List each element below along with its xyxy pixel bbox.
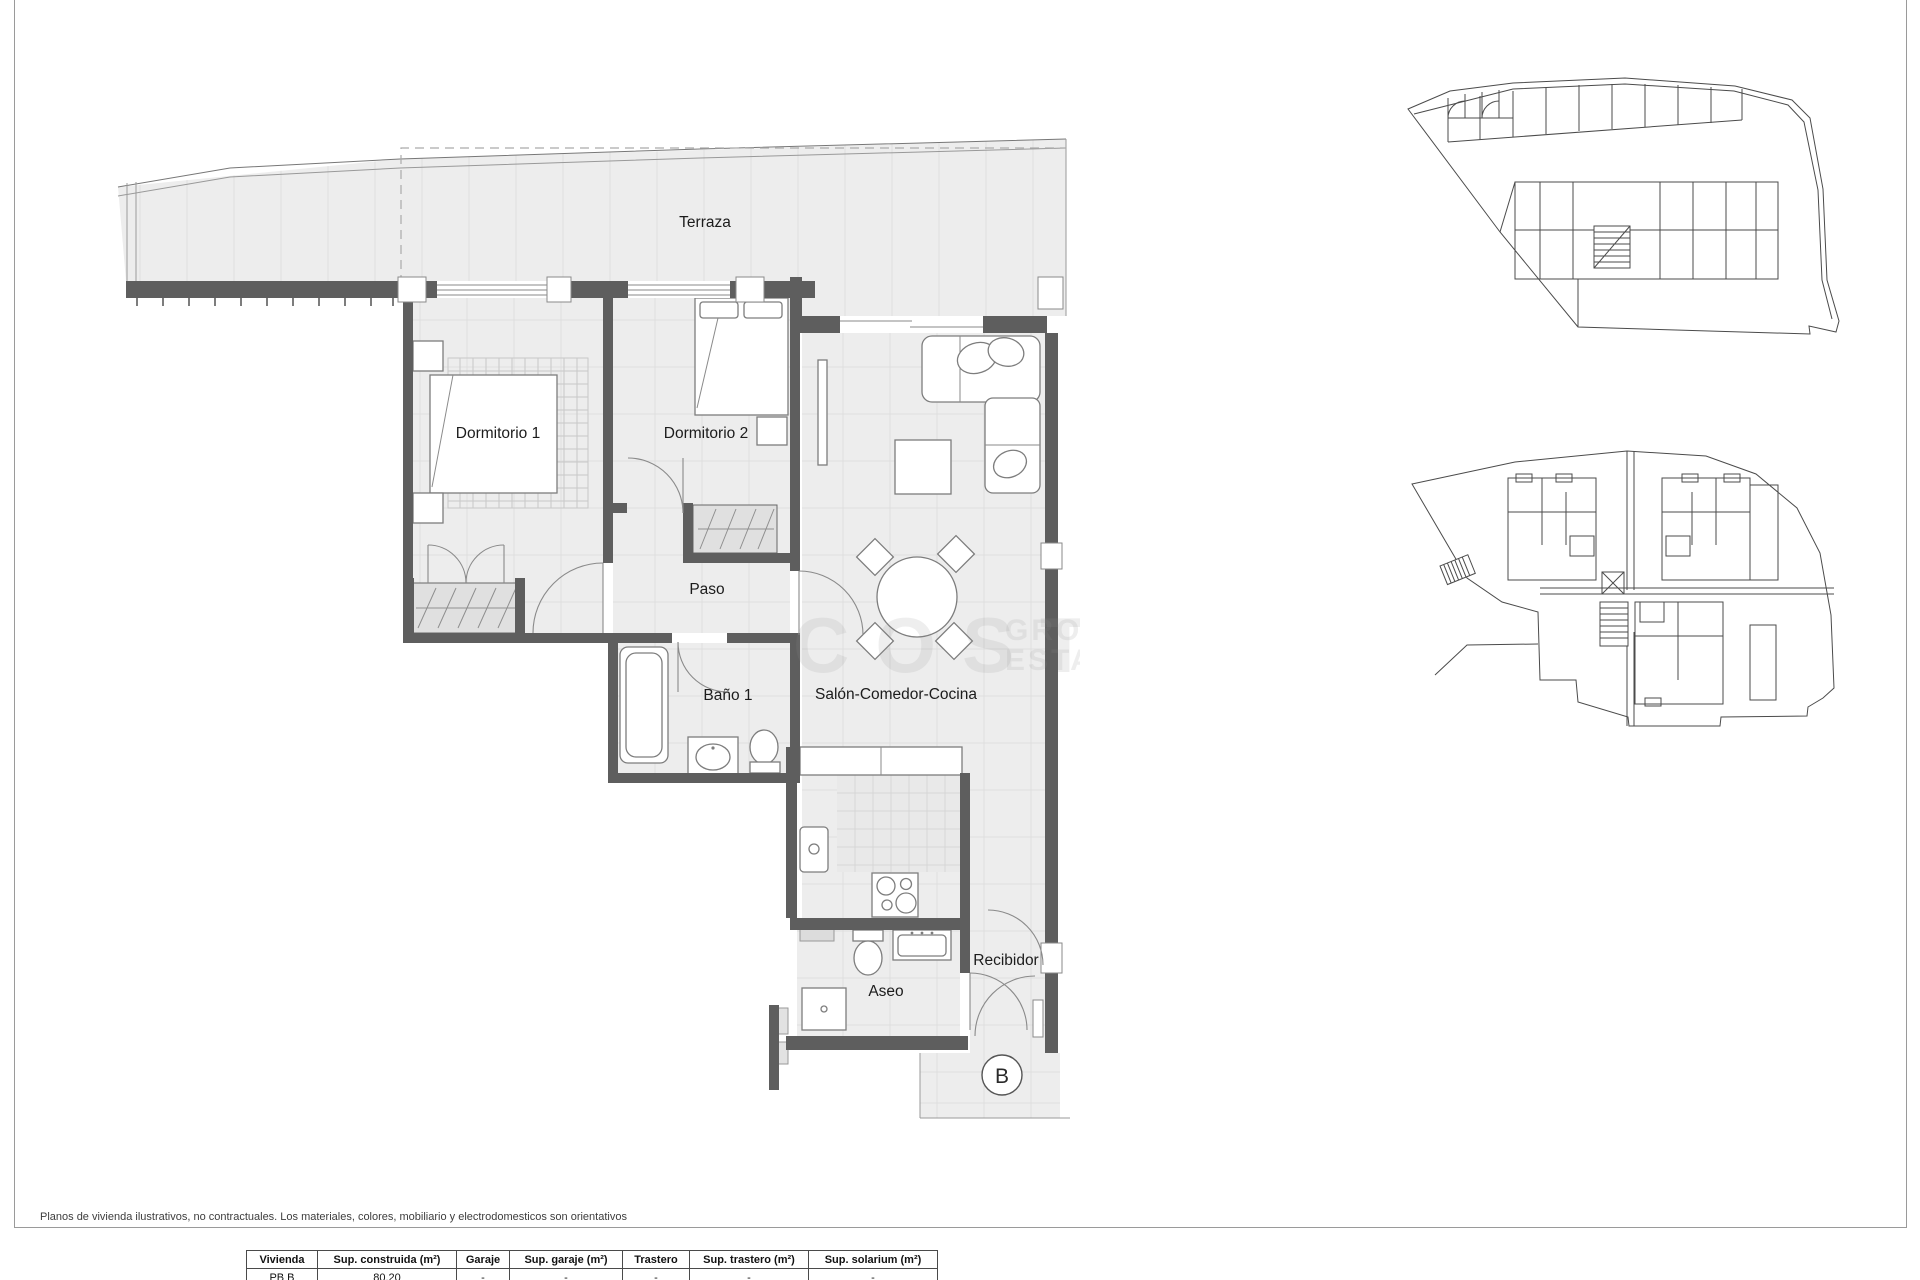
col-vivienda: Vivienda xyxy=(247,1251,318,1269)
cell-vivienda: PB B xyxy=(247,1269,318,1280)
cell-sup-solarium: - xyxy=(809,1269,938,1280)
bathtub xyxy=(620,647,668,763)
label-bano-1: Baño 1 xyxy=(703,687,752,704)
side-table xyxy=(895,440,951,494)
cell-trastero: - xyxy=(623,1269,690,1280)
col-sup-construida: Sup. construida (m²) xyxy=(318,1251,457,1269)
svg-text:GRO: GRO xyxy=(1005,614,1080,647)
floor-plan-page: COSTA GRO ESTA Terraza Dormitorio 1 Dorm… xyxy=(0,0,1920,1280)
cell-sup-trastero: - xyxy=(690,1269,809,1280)
page-border-bottom xyxy=(14,1227,1907,1228)
unit-b-marker: B xyxy=(982,1055,1022,1095)
apartment-plan: COSTA GRO ESTA Terraza Dormitorio 1 Dorm… xyxy=(80,100,1080,1160)
sliding-window xyxy=(840,316,983,333)
tv-bench xyxy=(818,360,827,465)
nightstand-1a xyxy=(413,341,443,371)
col-trastero: Trastero xyxy=(623,1251,690,1269)
label-recibidor: Recibidor xyxy=(973,952,1038,969)
surface-table: Vivienda Sup. construida (m²) Garaje Sup… xyxy=(246,1250,938,1280)
bath1-toilet xyxy=(750,730,780,773)
cell-sup-garaje: - xyxy=(510,1269,623,1280)
aseo-toilet xyxy=(853,930,883,975)
label-paso: Paso xyxy=(689,581,724,598)
label-salon: Salón-Comedor-Cocina xyxy=(815,686,977,703)
floor-key-plan xyxy=(1390,440,1870,760)
col-sup-garaje: Sup. garaje (m²) xyxy=(510,1251,623,1269)
cooktop xyxy=(872,873,918,917)
cell-garaje: - xyxy=(457,1269,510,1280)
svg-text:B: B xyxy=(995,1065,1009,1088)
col-garaje: Garaje xyxy=(457,1251,510,1269)
kitchen-tiles xyxy=(837,775,962,872)
aseo-sink xyxy=(893,930,951,960)
label-dormitorio-1: Dormitorio 1 xyxy=(456,425,540,442)
nightstand-1b xyxy=(413,493,443,523)
label-terraza: Terraza xyxy=(679,214,731,231)
kitchen-sink xyxy=(800,827,828,872)
svg-text:ESTA: ESTA xyxy=(1005,644,1080,677)
garage-level-plan xyxy=(1390,58,1870,350)
col-sup-trastero: Sup. trastero (m²) xyxy=(690,1251,809,1269)
disclaimer-text: Planos de vivienda ilustrativos, no cont… xyxy=(40,1211,627,1223)
nightstand-2 xyxy=(757,417,787,445)
page-border-left xyxy=(14,0,15,1227)
label-aseo: Aseo xyxy=(868,983,903,1000)
page-border-right xyxy=(1906,0,1907,1227)
col-sup-solarium: Sup. solarium (m²) xyxy=(809,1251,938,1269)
watermark: COSTA GRO ESTA xyxy=(793,601,1080,689)
cell-sup-construida: 80.20 xyxy=(318,1269,457,1280)
label-dormitorio-2: Dormitorio 2 xyxy=(664,425,748,442)
table-row: PB B 80.20 - - - - - xyxy=(247,1269,938,1280)
bath1-sink xyxy=(688,737,738,779)
